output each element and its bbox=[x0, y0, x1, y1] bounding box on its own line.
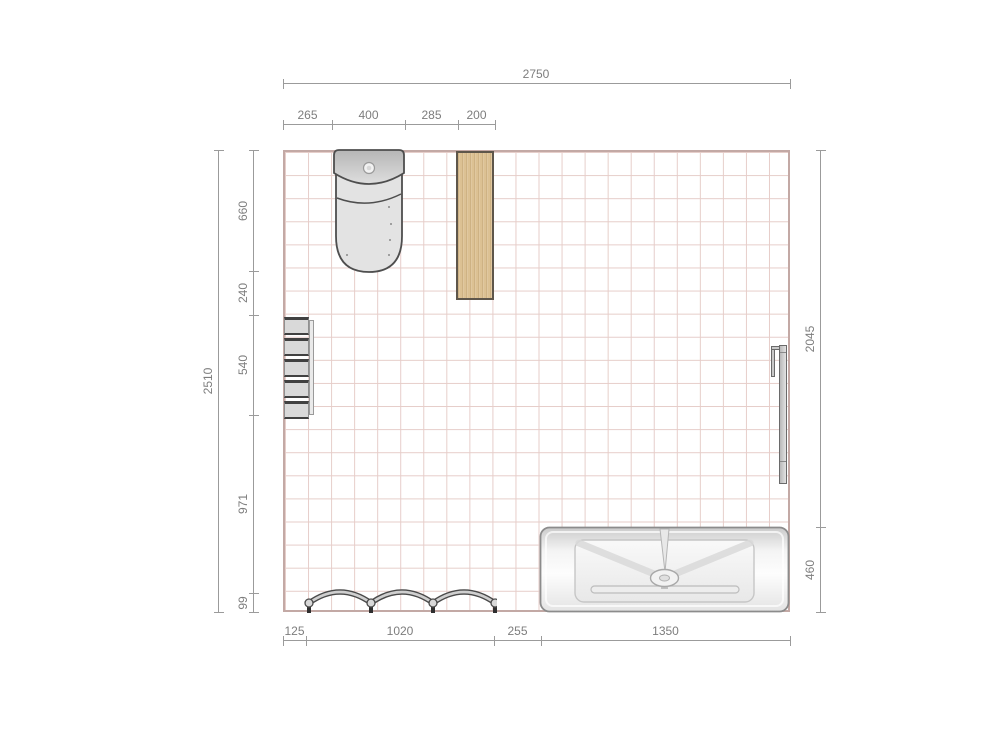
wall-shelf[interactable] bbox=[284, 317, 314, 419]
dim-label: 460 bbox=[803, 559, 817, 579]
towel-radiator[interactable] bbox=[768, 344, 788, 485]
radiator-handle-bar bbox=[771, 349, 775, 377]
dim-left-segments: 660 240 540 971 99 bbox=[253, 150, 254, 612]
dim-bottom-segments: 125 1020 255 1350 bbox=[283, 640, 790, 641]
shelf-side-lip bbox=[309, 320, 314, 415]
dim-label: 265 bbox=[297, 108, 317, 122]
dim-top-total: 2750 bbox=[283, 83, 790, 84]
dim-label: 99 bbox=[236, 596, 250, 609]
floorplan-canvas: 2750 265 400 285 200 2510 660 240 540 97… bbox=[0, 0, 1000, 750]
wood-panel[interactable] bbox=[456, 151, 494, 300]
dim-left-total: 2510 bbox=[218, 150, 219, 612]
dim-label: 2750 bbox=[523, 67, 550, 81]
dim-label: 240 bbox=[236, 283, 250, 303]
dim-label: 2510 bbox=[201, 368, 215, 395]
dim-label: 285 bbox=[421, 108, 441, 122]
bathtub-icon[interactable] bbox=[539, 526, 790, 613]
dim-top-segments: 265 400 285 200 bbox=[283, 124, 495, 125]
dim-label: 255 bbox=[507, 624, 527, 638]
dim-label: 125 bbox=[284, 624, 304, 638]
towel-bows-icon[interactable] bbox=[303, 584, 497, 614]
dim-right-segments: 2045 460 bbox=[820, 150, 821, 612]
toilet-icon[interactable] bbox=[330, 148, 408, 276]
dim-label: 1350 bbox=[652, 624, 679, 638]
radiator-body bbox=[779, 345, 787, 484]
dim-label: 660 bbox=[236, 200, 250, 220]
dim-label: 971 bbox=[236, 494, 250, 514]
dim-label: 2045 bbox=[803, 325, 817, 352]
dim-label: 200 bbox=[466, 108, 486, 122]
dim-label: 400 bbox=[358, 108, 378, 122]
dim-label: 540 bbox=[236, 355, 250, 375]
dim-label: 1020 bbox=[387, 624, 414, 638]
